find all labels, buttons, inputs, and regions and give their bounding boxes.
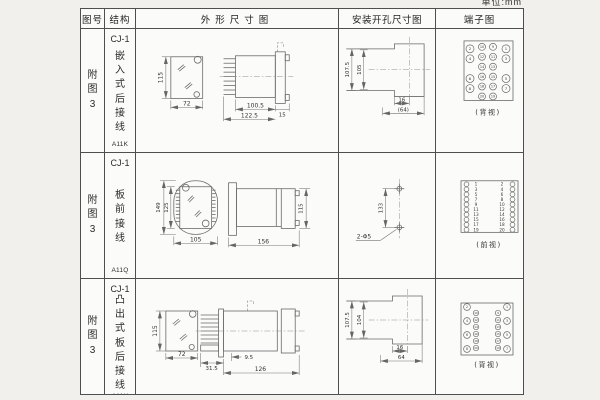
terminal-pin-number: 17 (491, 85, 495, 89)
dim-height: 115 (152, 325, 159, 337)
terminal-pin-number: 20 (499, 227, 505, 232)
dimension-lines (346, 49, 424, 115)
terminal-pin-number: 7 (505, 86, 508, 91)
terminal-pin-number: 11 (491, 55, 495, 59)
dim-height: 115 (157, 72, 164, 84)
terminal-pin (464, 222, 469, 227)
terminal-pin-number: 11 (496, 318, 500, 322)
terminal-pin-number: 14 (474, 325, 478, 329)
dim-notch: 16 (396, 345, 403, 351)
terminal-pin-number: 16 (480, 75, 484, 79)
terminal-pin (510, 207, 515, 212)
dim-step: 9.5 (244, 355, 253, 361)
terminal-pin-number: 6 (466, 333, 468, 337)
dim-notch: 16 (398, 97, 405, 103)
header-outline: 外形尺寸图 (136, 9, 339, 29)
dim-inner-h: 125 (164, 202, 170, 212)
terminal-pin-number: 4 (469, 56, 472, 61)
terminal-pin-number: 8 (466, 347, 468, 351)
outline-drawing-a11q: 149 125 105 115 156 (136, 153, 338, 278)
outline-drawing-a11h: 115 72 9.5 31.5 126 (136, 279, 338, 394)
code-label: A11K (112, 141, 128, 148)
front-view (171, 56, 203, 98)
terminal-pin-number: 19 (496, 346, 500, 350)
model-label: CJ-1 (110, 284, 129, 294)
model-label: CJ-1 (110, 34, 129, 44)
terminal-diagram-a11h: 2468101214161820911131517191357 (背视) (436, 279, 523, 394)
view-label: (背视) (474, 360, 499, 369)
fig-cell-row1: 附图3 (81, 29, 105, 153)
terminal-pin-number: 6 (469, 76, 472, 81)
terminal-board (461, 181, 518, 233)
fig-cell-row3: 附图3 (81, 279, 105, 394)
terminal-pin-number: 18 (474, 339, 478, 343)
dim-side-h: 115 (299, 203, 305, 213)
dim-flange: 15 (279, 112, 286, 118)
fig-label: 附图3 (87, 69, 99, 112)
terminal-pin (510, 197, 515, 202)
dimension-lines (346, 301, 422, 363)
terminal-pin-number: 19 (491, 95, 495, 99)
terminal-cell-row3: 2468101214161820911131517191357 (背视) (436, 279, 523, 394)
dim-length: 156 (258, 238, 270, 245)
terminal-pin (510, 212, 515, 217)
terminal-pin-number: 16 (474, 332, 478, 336)
header-terminal: 端子图 (436, 9, 523, 29)
outline-cell-row3: 115 72 9.5 31.5 126 (136, 279, 339, 394)
terminal-pin-number: 19 (473, 227, 479, 232)
outline-drawing-a11k: 115 72 100.5 15 122.5 (136, 29, 338, 152)
terminal-pin-number: 13 (491, 65, 495, 69)
header-mounting: 安装开孔尺寸图 (339, 9, 436, 29)
fig-label: 附图3 (87, 315, 99, 358)
terminal-pin-number: 15 (491, 75, 495, 79)
terminal-pin-number: 14 (480, 65, 484, 69)
terminal-pin (464, 227, 469, 232)
side-view (224, 52, 290, 104)
terminal-pin-number: 2 (466, 305, 468, 309)
terminal-diagram-a11q: 1234567891011121314151617181920 (前视) (436, 153, 523, 278)
dim-outer-h: 107.5 (345, 312, 351, 328)
terminal-pin (510, 182, 515, 187)
side-view (201, 309, 300, 357)
dim-inner-h: 104 (357, 314, 363, 325)
terminal-pin (464, 182, 469, 187)
dim-length: 126 (255, 366, 267, 373)
terminal-pin (510, 227, 515, 232)
spec-table: 图号 结构 外形尺寸图 安装开孔尺寸图 端子图 附图3 CJ-1 嵌入式后接线 … (80, 8, 524, 395)
structure-cell-row1: CJ-1 嵌入式后接线 A11K (105, 29, 136, 153)
terminal-pin-number: 5 (506, 333, 508, 337)
dim-total: 122.5 (241, 112, 258, 119)
terminal-pins: 1234567891011121314151617181920 (464, 182, 515, 233)
terminal-pin-number: 18 (480, 85, 484, 89)
view-label: (背视) (475, 107, 500, 116)
terminal-pin-number: 1 (506, 305, 508, 309)
mount-type-label: 板前接线 (114, 189, 127, 246)
mounting-cell-row3: 107.5 104 16 64 (339, 279, 436, 394)
terminal-pin-number: 8 (469, 86, 472, 91)
mounting-cell-row1: 107.5 105 16 (64) (339, 29, 436, 153)
front-view (166, 311, 198, 351)
dim-width: 64 (398, 355, 405, 361)
terminal-pin (510, 192, 515, 197)
dim-pitch: 133 (379, 202, 385, 213)
dim-width: 72 (178, 351, 186, 358)
dim-outer-h: 149 (156, 202, 162, 213)
dimension-lines (160, 181, 310, 247)
terminal-pin-number: 10 (474, 311, 478, 315)
terminal-diagram-a11k: 2109141211314136161558181772019 (背视) (436, 29, 523, 152)
manual-page: 单位:mm 图号 结构 外形尺寸图 安装开孔尺寸图 端子图 附图3 CJ-1 嵌… (0, 0, 600, 400)
terminal-pin-number: 2 (469, 46, 472, 51)
terminal-pin-number: 10 (480, 45, 484, 49)
dim-outer-h: 107.5 (345, 62, 351, 78)
terminal-pins: 2468101214161820911131517191357 (464, 304, 511, 353)
dim-pins: 31.5 (206, 366, 218, 372)
dim-width: 72 (183, 100, 191, 107)
terminal-pin (464, 202, 469, 207)
mounting-drawing-a11h: 107.5 104 16 64 (339, 279, 435, 394)
terminal-pin-number: 12 (474, 318, 478, 322)
terminal-pin (464, 212, 469, 217)
terminal-pin (510, 217, 515, 222)
terminal-pin-number: 20 (474, 346, 478, 350)
header-fig: 图号 (81, 9, 105, 29)
structure-cell-row3: CJ-1 凸出式板后接线 A11H (105, 279, 136, 394)
outline-cell-row2: 149 125 105 115 156 (136, 153, 339, 279)
terminal-cell-row2: 1234567891011121314151617181920 (前视) (436, 153, 523, 279)
terminal-pin (464, 207, 469, 212)
mount-type-label: 嵌入式后接线 (114, 50, 127, 135)
latch-hook (277, 43, 283, 52)
terminal-pin-number: 17 (496, 339, 500, 343)
hole-callout: 2-Φ5 (357, 233, 372, 240)
terminal-cell-row1: 2109141211314136161558181772019 (背视) (436, 29, 523, 153)
dimension-lines (162, 57, 289, 121)
header-structure: 结构 (105, 9, 136, 29)
mounting-holes (394, 184, 404, 233)
terminal-pin-number: 12 (480, 55, 484, 59)
terminal-pin (510, 222, 515, 227)
dim-inner-h: 105 (357, 64, 363, 74)
terminal-pin (464, 192, 469, 197)
terminal-pin-number: 9 (497, 311, 499, 315)
mounting-drawing-a11k: 107.5 105 16 (64) (339, 29, 435, 152)
terminal-pin-number: 13 (496, 325, 500, 329)
terminal-pins: 2109141211314136161558181772019 (466, 43, 510, 100)
terminal-pin-number: 3 (505, 56, 508, 61)
dim-body: 100.5 (247, 102, 264, 109)
mount-type-label: 凸出式板后接线 (114, 294, 127, 393)
terminal-pin-number: 20 (480, 95, 484, 99)
terminal-pin-number: 15 (496, 332, 500, 336)
terminal-pin-number: 9 (492, 45, 494, 49)
code-label: A11Q (112, 267, 129, 274)
terminal-pin-number: 4 (466, 319, 468, 323)
structure-cell-row2: CJ-1 板前接线 A11Q (105, 153, 136, 279)
terminal-pin (464, 217, 469, 222)
side-view (229, 183, 300, 236)
latch-hook (247, 301, 253, 311)
terminal-pin-number: 3 (506, 319, 508, 323)
outline-cell-row1: 115 72 100.5 15 122.5 (136, 29, 339, 153)
code-label: A11H (112, 393, 129, 394)
terminal-pin (464, 197, 469, 202)
terminal-pin (510, 187, 515, 192)
mounting-cell-row2: 133 2-Φ5 (339, 153, 436, 279)
unit-label: 单位:mm (482, 0, 523, 8)
dim-width: 105 (190, 236, 202, 243)
terminal-pin-number: 1 (505, 46, 508, 51)
terminal-pin-number: 7 (506, 347, 508, 351)
mounting-drawing-a11q: 133 2-Φ5 (339, 153, 435, 278)
model-label: CJ-1 (110, 158, 129, 168)
terminal-pin-number: 5 (505, 76, 508, 81)
fig-cell-row2: 附图3 (81, 153, 105, 279)
view-label: (前视) (476, 240, 501, 249)
terminal-pin (510, 202, 515, 207)
dim-width: (64) (398, 107, 409, 113)
front-view (174, 181, 218, 235)
terminal-pin (464, 187, 469, 192)
fig-label: 附图3 (87, 194, 99, 237)
